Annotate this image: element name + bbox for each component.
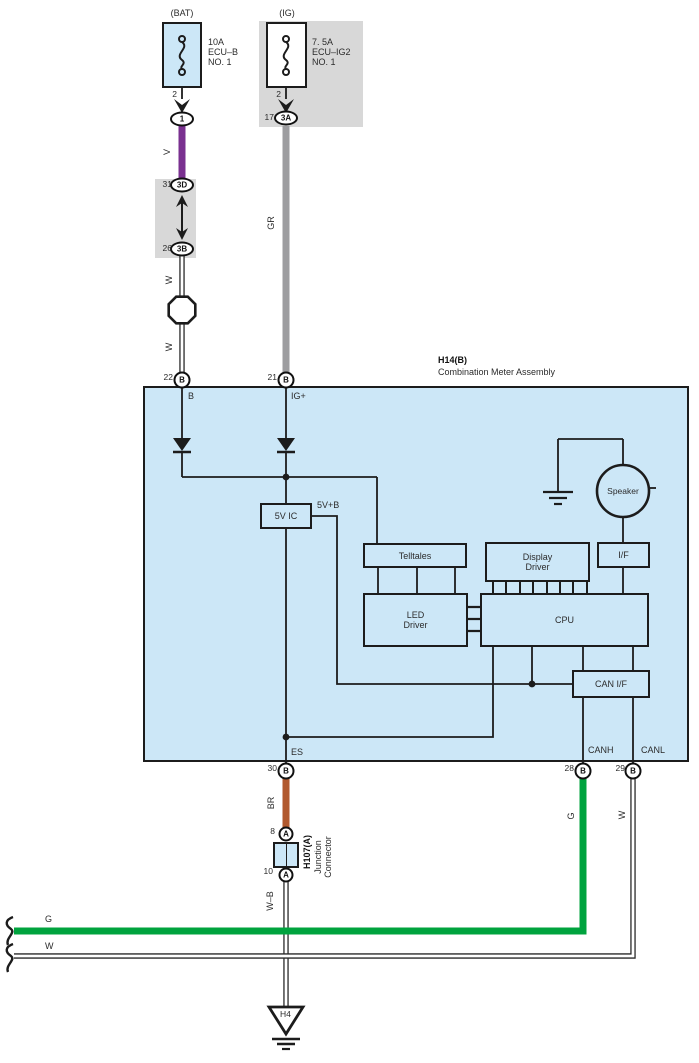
jc-pin-10-circle: A xyxy=(279,868,294,883)
cpu-box: CPU xyxy=(480,593,649,647)
pin-22-circle: B xyxy=(174,372,191,389)
pin-30-num: 30 xyxy=(268,763,277,773)
ig-fuse-box xyxy=(266,22,307,88)
bat-name-1: ECU–B xyxy=(208,47,238,57)
signal-5vb: 5V+B xyxy=(317,500,339,510)
led-driver-label-2: Driver xyxy=(404,620,428,630)
pin-29-num: 29 xyxy=(616,763,625,773)
signal-canl: CANL xyxy=(641,745,665,755)
ig-name-1: ECU–IG2 xyxy=(312,47,351,57)
connector-3d: 3D xyxy=(170,178,194,193)
pin-28-circle: B xyxy=(575,763,592,780)
wire-wb-label: W–B xyxy=(265,891,275,911)
combination-meter-box xyxy=(143,386,689,762)
pin-29-circle: B xyxy=(625,763,642,780)
meter-code: H14(B) xyxy=(438,355,467,365)
wire-br-label: BR xyxy=(266,797,276,810)
bat-fuse-box xyxy=(162,22,202,88)
connector-1: 1 xyxy=(170,112,194,127)
ground-h4-label: H4 xyxy=(280,1009,291,1019)
telltales-label: Telltales xyxy=(399,551,432,561)
signal-igplus: IG+ xyxy=(291,391,306,401)
jc-pin-8-num: 8 xyxy=(270,826,275,836)
display-driver-box: Display Driver xyxy=(485,542,590,582)
junction-connector-box xyxy=(273,842,299,868)
telltales-box: Telltales xyxy=(363,543,467,568)
connector-3b: 3B xyxy=(170,242,194,257)
can-if-box: CAN I/F xyxy=(572,670,650,698)
if-box: I/F xyxy=(597,542,650,568)
wiring-diagram: 5V IC Telltales Display Driver LED Drive… xyxy=(0,0,699,1063)
wire-w-upper-label: W xyxy=(164,276,174,285)
display-driver-label-2: Driver xyxy=(526,562,550,572)
pin-22-num: 22 xyxy=(164,372,173,382)
can-if-label: CAN I/F xyxy=(595,679,627,689)
ig-pin-num: 2 xyxy=(276,89,281,99)
signal-canh: CANH xyxy=(588,745,614,755)
signal-es: ES xyxy=(291,747,303,757)
green-wire-continuation-icon xyxy=(7,917,13,945)
jc-name-1: Junction xyxy=(313,840,323,874)
ig-title: (IG) xyxy=(279,8,295,18)
junction-connector-divider xyxy=(286,844,287,866)
jc-pin-8-circle: A xyxy=(279,827,294,842)
wire-w-vertical-label: W xyxy=(617,811,627,820)
bat-name-2: NO. 1 xyxy=(208,57,232,67)
terminal-31: 31 xyxy=(163,179,172,189)
display-driver-label-1: Display xyxy=(523,552,553,562)
5v-ic-box: 5V IC xyxy=(260,503,312,529)
meter-name: Combination Meter Assembly xyxy=(438,367,555,377)
cpu-label: CPU xyxy=(555,615,574,625)
bat-title: (BAT) xyxy=(171,8,194,18)
pin-21-circle: B xyxy=(278,372,295,389)
led-driver-label-1: LED xyxy=(407,610,425,620)
wire-gr-label: GR xyxy=(266,216,276,230)
white-wire-continuation-icon xyxy=(7,944,13,972)
if-label: I/F xyxy=(618,550,629,560)
5v-ic-label: 5V IC xyxy=(275,511,298,521)
bat-rating: 10A xyxy=(208,37,224,47)
pin-30-circle: B xyxy=(278,763,295,780)
connector-3a: 3A xyxy=(274,111,298,126)
terminal-26: 26 xyxy=(163,243,172,253)
jc-name-2: Connector xyxy=(323,836,333,878)
wire-w-lower-label: W xyxy=(164,343,174,352)
wire-v-label: V xyxy=(162,149,172,155)
led-driver-box: LED Driver xyxy=(363,593,468,647)
pin-21-num: 21 xyxy=(268,372,277,382)
bat-pin-num: 2 xyxy=(172,89,177,99)
signal-b: B xyxy=(188,391,194,401)
ig-name-2: NO. 1 xyxy=(312,57,336,67)
pin-28-num: 28 xyxy=(565,763,574,773)
ig-rating: 7. 5A xyxy=(312,37,333,47)
octagon-connector-icon xyxy=(169,297,196,324)
wire-g-horizontal-label: G xyxy=(45,914,52,924)
speaker-label: Speaker xyxy=(607,486,639,496)
wire-g-vertical-label: G xyxy=(566,812,576,819)
jc-code: H107(A) xyxy=(302,835,312,869)
jc-pin-10-num: 10 xyxy=(264,866,273,876)
wire-w-horizontal-label: W xyxy=(45,941,54,951)
terminal-17: 17 xyxy=(265,112,274,122)
